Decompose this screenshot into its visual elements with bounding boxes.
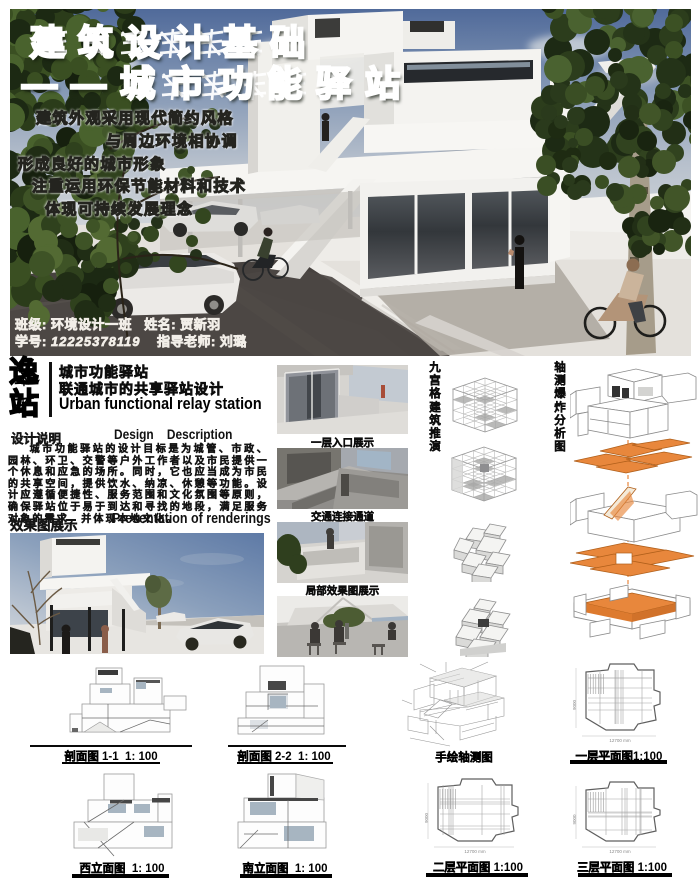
svg-text:9000: 9000 [424,812,429,823]
svg-text:12700 mm: 12700 mm [464,849,486,854]
svg-text:12700 mm: 12700 mm [609,738,631,743]
svg-text:9000: 9000 [572,814,577,825]
svg-text:9000: 9000 [572,699,577,710]
svg-text:12700 mm: 12700 mm [609,849,631,854]
